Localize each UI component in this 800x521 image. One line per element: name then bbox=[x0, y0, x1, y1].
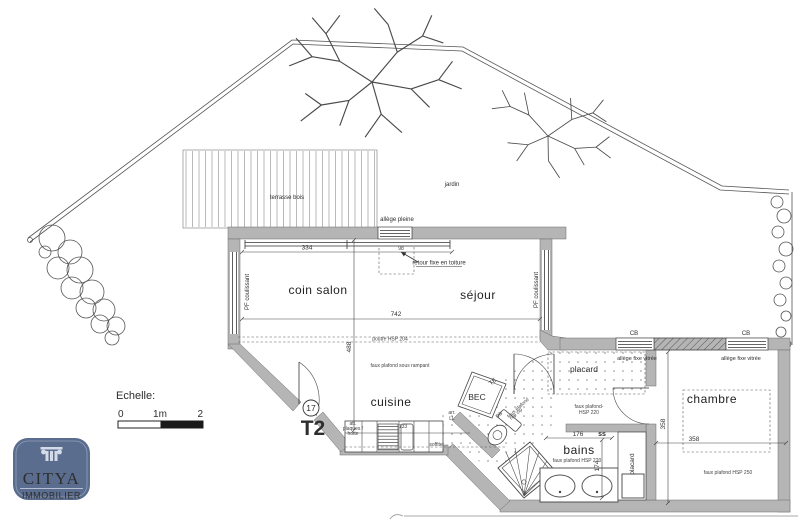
retour-fixe-label: retour fixe en toiture bbox=[412, 261, 466, 267]
room-sejour: séjour bbox=[460, 288, 496, 302]
logo-name: CITYA bbox=[23, 469, 81, 488]
dim-334: 334 bbox=[302, 245, 313, 252]
floor-plan-page: terrasse bois jardin bbox=[0, 0, 800, 521]
terrace-label: terrasse bois bbox=[270, 195, 304, 201]
faux-plafond-hall-l2: HSP 220 bbox=[579, 410, 599, 416]
pf-coulissant-right: PF coulissant bbox=[534, 272, 540, 308]
window-fixed-2 bbox=[726, 338, 768, 350]
allege-fixe-label-1: allège fixe vitrée bbox=[617, 356, 657, 362]
unit-number: 17 bbox=[306, 403, 316, 413]
room-bains: bains bbox=[563, 443, 594, 457]
poutre-label: poutre HSP 204 bbox=[372, 337, 408, 343]
scale-bar: Echelle: 0 1m 2 bbox=[116, 390, 203, 428]
garden-label: jardin bbox=[444, 182, 460, 188]
scale-title: Echelle: bbox=[116, 390, 155, 402]
soffite-label: soffite bbox=[429, 442, 442, 448]
dim-742: 742 bbox=[391, 311, 402, 318]
dim-174: 174 bbox=[594, 460, 601, 471]
tree-icon bbox=[289, 8, 462, 137]
terrace bbox=[183, 150, 377, 228]
room-cuisine: cuisine bbox=[371, 395, 412, 409]
cb-label-2: CB bbox=[742, 331, 750, 337]
floor-plan-drawing: terrasse bois jardin bbox=[0, 0, 800, 521]
placard-hall-label: placard bbox=[570, 364, 598, 374]
fence-boundary bbox=[28, 40, 793, 345]
room-coin-salon: coin salon bbox=[288, 283, 347, 297]
dim-488: 488 bbox=[346, 341, 353, 352]
dim-176: 176 bbox=[573, 431, 584, 438]
hatched-wall bbox=[654, 338, 726, 350]
sliding-door-right bbox=[542, 250, 550, 330]
ss-label: ss bbox=[598, 431, 606, 438]
tree-icon bbox=[479, 73, 625, 190]
unit-badge: 17 T2 bbox=[301, 400, 326, 440]
att-plaques-l3: hotte bbox=[347, 431, 358, 437]
cb-label-1: CB bbox=[630, 331, 638, 337]
dim-98: 98 bbox=[398, 246, 404, 252]
arr-ll-l2: LL bbox=[449, 416, 455, 422]
climbing-plant-icon bbox=[771, 196, 793, 348]
bec-label: BEC bbox=[468, 392, 485, 402]
allege-pleine-label: allège pleine bbox=[380, 217, 414, 223]
scale-tick-0: 0 bbox=[118, 409, 124, 420]
window-fixed-1 bbox=[616, 338, 654, 350]
placard-bains-label: placard bbox=[629, 453, 636, 475]
pf-coulissant-left: PF coulissant bbox=[245, 274, 251, 310]
logo-tagline: IMMOBILIER bbox=[22, 491, 81, 501]
sliding-door-left bbox=[230, 252, 238, 334]
dim-358-v: 358 bbox=[660, 418, 667, 429]
allege-fixe-label-2: allège fixe vitrée bbox=[721, 356, 761, 362]
dim-133: 133 bbox=[399, 424, 408, 430]
bottom-boundary-line bbox=[390, 515, 798, 519]
scale-tick-2: 2 bbox=[197, 409, 203, 420]
hedge-icon bbox=[39, 225, 125, 345]
window-bay-terrace bbox=[245, 240, 450, 249]
unit-type: T2 bbox=[301, 417, 326, 440]
faux-plafond-chambre-label: faux plafond HSP 250 bbox=[704, 470, 753, 476]
citya-logo: CITYA IMMOBILIER bbox=[13, 438, 90, 501]
room-chambre: chambre bbox=[687, 392, 737, 406]
double-washbasin bbox=[540, 468, 618, 502]
window-allege-pleine bbox=[378, 227, 412, 239]
faux-plafond-rampant-label: faux plafond sous rampant bbox=[371, 363, 431, 369]
dim-358-h: 358 bbox=[689, 436, 700, 443]
scale-tick-1m: 1m bbox=[153, 409, 167, 420]
